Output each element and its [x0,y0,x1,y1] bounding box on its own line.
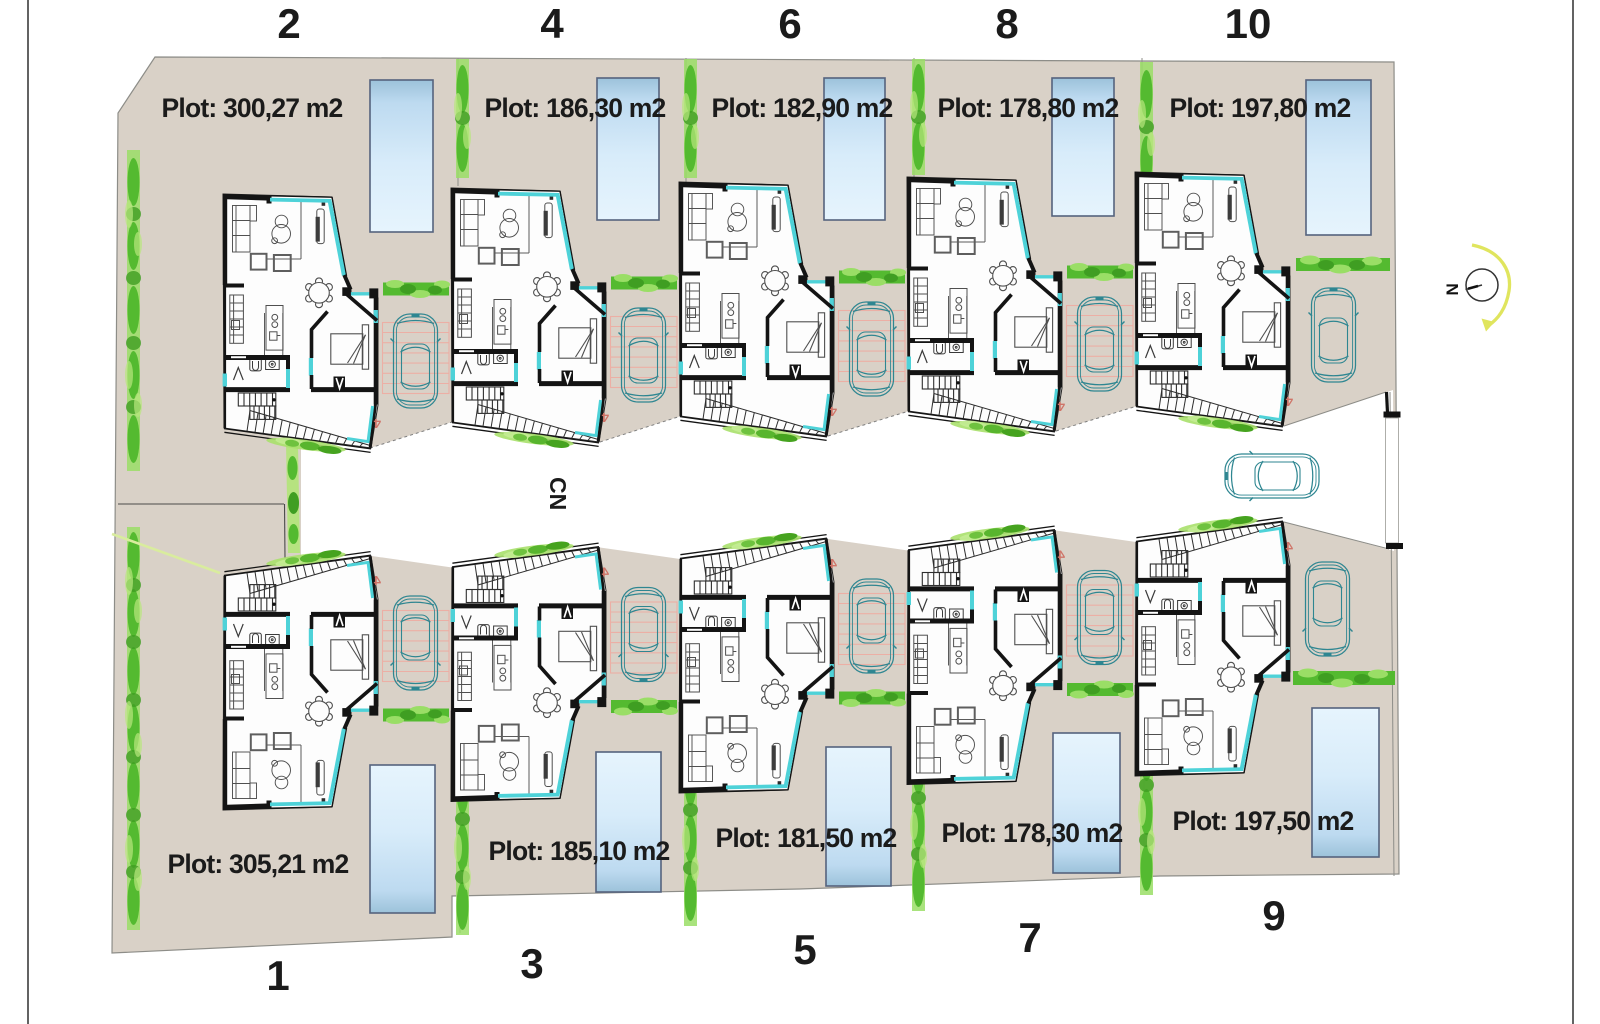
svg-text:4: 4 [540,0,564,47]
svg-text:Plot: 178,30 m2: Plot: 178,30 m2 [942,818,1123,848]
svg-text:Plot: 185,10 m2: Plot: 185,10 m2 [489,836,670,866]
svg-text:10: 10 [1225,0,1272,47]
svg-text:N: N [1443,283,1462,295]
svg-text:Plot: 305,21 m2: Plot: 305,21 m2 [168,849,349,879]
svg-text:2: 2 [277,0,300,47]
svg-text:Plot: 300,27 m2: Plot: 300,27 m2 [162,93,343,123]
svg-text:6: 6 [778,0,801,47]
svg-text:Plot: 186,30 m2: Plot: 186,30 m2 [485,93,666,123]
svg-text:Plot: 178,80 m2: Plot: 178,80 m2 [938,93,1119,123]
svg-text:Plot: 181,50 m2: Plot: 181,50 m2 [716,823,897,853]
svg-text:Plot: 197,80 m2: Plot: 197,80 m2 [1170,93,1351,123]
svg-text:CN: CN [545,477,571,510]
svg-text:Plot: 197,50 m2: Plot: 197,50 m2 [1173,806,1354,836]
svg-text:1: 1 [266,952,289,999]
svg-text:7: 7 [1018,914,1041,961]
svg-text:Plot: 182,90 m2: Plot: 182,90 m2 [712,93,893,123]
svg-text:8: 8 [995,0,1018,47]
svg-text:9: 9 [1262,892,1285,939]
svg-text:3: 3 [520,940,543,987]
svg-text:5: 5 [793,926,816,973]
